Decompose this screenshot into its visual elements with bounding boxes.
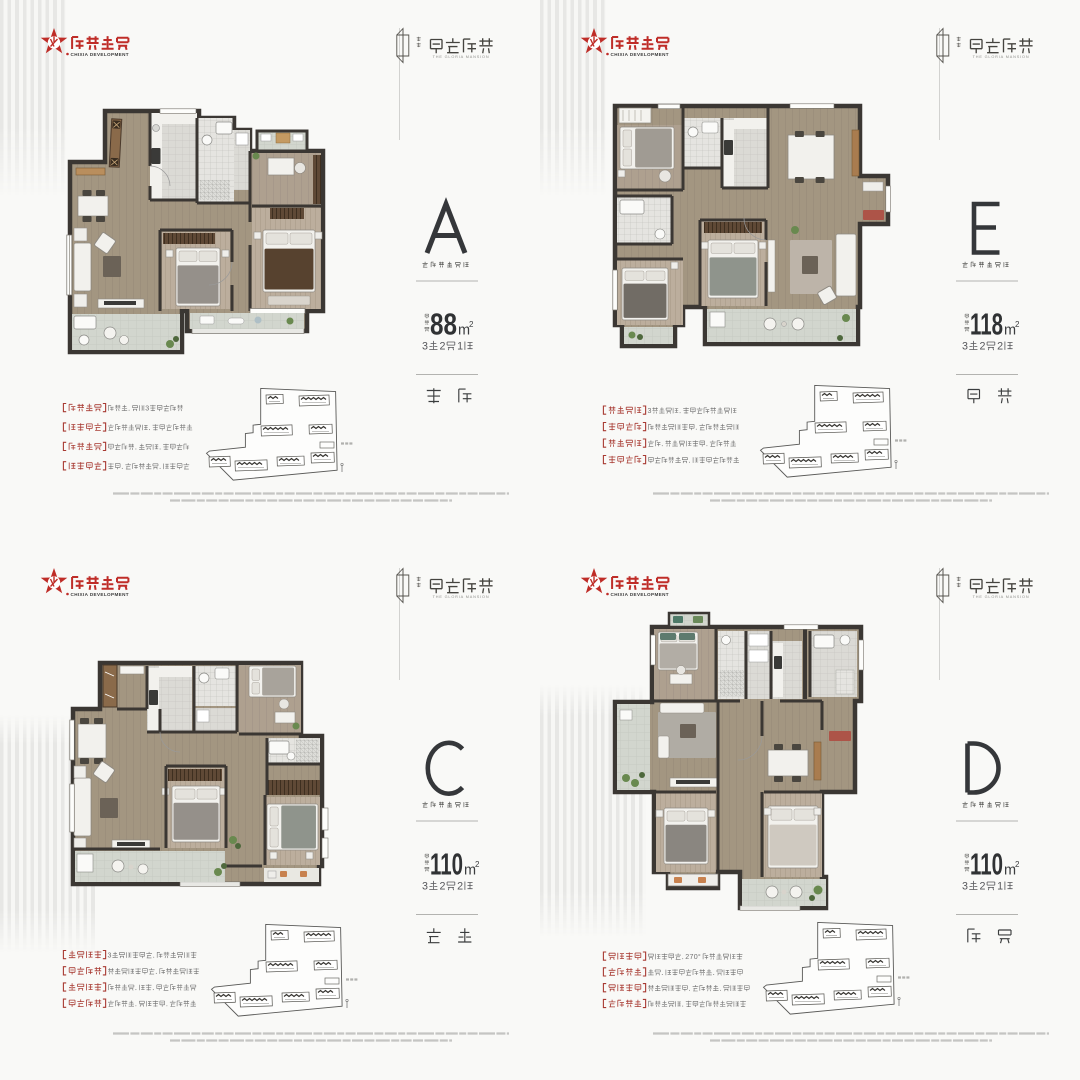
svg-text:CHIXIA DEVELOPMENT: CHIXIA DEVELOPMENT <box>71 52 129 57</box>
svg-text:3: 3 <box>962 880 968 892</box>
svg-text:1: 1 <box>997 880 1003 892</box>
svg-text:2: 2 <box>457 880 463 892</box>
svg-text:THE GLORIA MANSION: THE GLORIA MANSION <box>433 595 490 599</box>
svg-text:3: 3 <box>145 404 149 412</box>
svg-text:2: 2 <box>475 860 480 869</box>
svg-text:110: 110 <box>970 848 1003 882</box>
svg-text:THE GLORIA MANSION: THE GLORIA MANSION <box>973 595 1030 599</box>
svg-text:3: 3 <box>422 880 428 892</box>
svg-text:CHIXIA DEVELOPMENT: CHIXIA DEVELOPMENT <box>611 52 669 57</box>
svg-text:2: 2 <box>980 880 986 892</box>
svg-text:3: 3 <box>962 340 968 352</box>
svg-text:THE GLORIA MANSION: THE GLORIA MANSION <box>433 55 490 59</box>
svg-text:2: 2 <box>1015 320 1020 329</box>
svg-text:CHIXIA DEVELOPMENT: CHIXIA DEVELOPMENT <box>611 592 669 597</box>
svg-text:3: 3 <box>648 407 652 415</box>
svg-text:88: 88 <box>430 308 457 342</box>
svg-text:2: 2 <box>440 880 446 892</box>
svg-text:3: 3 <box>422 340 428 352</box>
svg-text:2: 2 <box>1015 860 1020 869</box>
svg-text:118: 118 <box>970 308 1003 342</box>
svg-text:2: 2 <box>997 340 1003 352</box>
svg-text:3: 3 <box>108 951 112 959</box>
svg-text:2: 2 <box>980 340 986 352</box>
svg-text:2: 2 <box>440 340 446 352</box>
svg-text:2: 2 <box>469 320 474 329</box>
svg-text:THE GLORIA MANSION: THE GLORIA MANSION <box>973 55 1030 59</box>
svg-text:CHIXIA DEVELOPMENT: CHIXIA DEVELOPMENT <box>71 592 129 597</box>
svg-text:110: 110 <box>430 848 463 882</box>
svg-text:°: ° <box>698 953 701 961</box>
svg-text:1: 1 <box>457 340 463 352</box>
